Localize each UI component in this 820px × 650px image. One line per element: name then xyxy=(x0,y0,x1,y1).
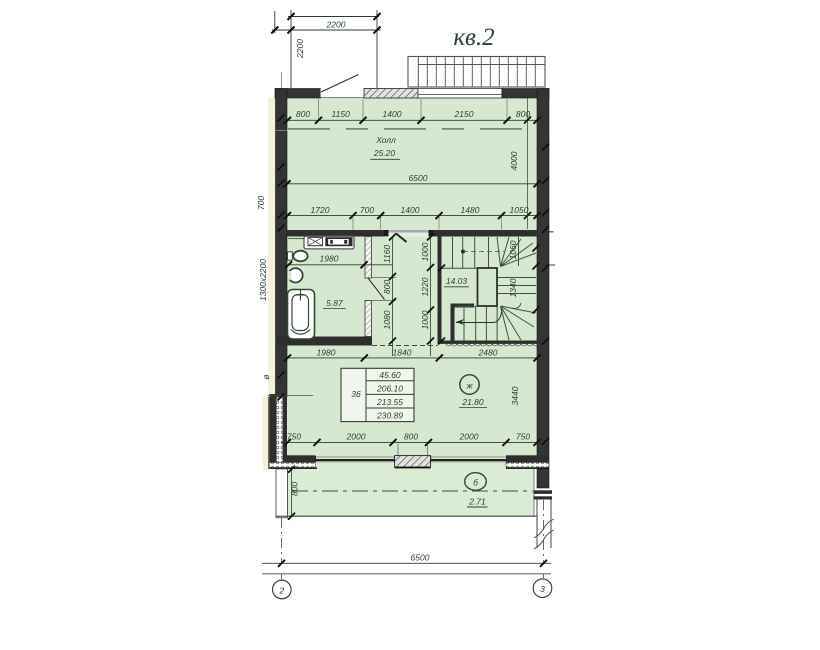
svg-text:700: 700 xyxy=(360,205,374,215)
svg-text:750: 750 xyxy=(516,431,530,441)
svg-text:4000: 4000 xyxy=(509,151,519,170)
svg-text:5.87: 5.87 xyxy=(326,298,343,308)
svg-text:45.60: 45.60 xyxy=(379,370,401,380)
svg-text:1340: 1340 xyxy=(508,278,518,297)
svg-text:1220: 1220 xyxy=(420,277,430,296)
svg-text:213.55: 213.55 xyxy=(376,397,403,407)
svg-text:14.03: 14.03 xyxy=(446,276,468,286)
svg-text:800: 800 xyxy=(290,482,300,496)
svg-text:2.71: 2.71 xyxy=(468,497,486,507)
svg-text:1480: 1480 xyxy=(461,205,480,215)
svg-text:3: 3 xyxy=(540,584,545,594)
svg-text:1400: 1400 xyxy=(383,109,402,119)
svg-text:Холл: Холл xyxy=(375,135,396,145)
svg-text:ø: ø xyxy=(261,374,271,379)
svg-text:800: 800 xyxy=(296,109,310,119)
svg-text:25.20: 25.20 xyxy=(373,148,396,158)
svg-text:1980: 1980 xyxy=(320,254,339,264)
svg-text:1000: 1000 xyxy=(420,310,430,329)
svg-text:1150: 1150 xyxy=(332,109,351,119)
svg-text:3440: 3440 xyxy=(510,386,520,405)
svg-text:1050: 1050 xyxy=(510,205,529,215)
svg-text:1160: 1160 xyxy=(382,245,392,264)
svg-text:750: 750 xyxy=(287,431,301,441)
svg-text:21.80: 21.80 xyxy=(461,397,484,407)
svg-text:1720: 1720 xyxy=(311,205,330,215)
svg-text:2150: 2150 xyxy=(454,109,474,119)
svg-text:2000: 2000 xyxy=(459,431,479,441)
svg-text:2200: 2200 xyxy=(326,20,346,30)
svg-text:2200: 2200 xyxy=(295,39,305,59)
svg-text:700: 700 xyxy=(256,196,266,210)
svg-text:1400: 1400 xyxy=(401,205,420,215)
svg-text:800: 800 xyxy=(404,431,418,441)
svg-text:2480: 2480 xyxy=(478,347,498,357)
svg-text:36: 36 xyxy=(351,389,361,399)
svg-text:1840: 1840 xyxy=(393,347,412,357)
svg-text:800: 800 xyxy=(516,109,530,119)
svg-text:2: 2 xyxy=(278,586,284,596)
svg-text:1060: 1060 xyxy=(508,240,518,259)
svg-text:206.10: 206.10 xyxy=(376,383,403,393)
svg-text:1000: 1000 xyxy=(420,242,430,261)
svg-text:1980: 1980 xyxy=(317,347,336,357)
svg-text:1300х2200: 1300х2200 xyxy=(258,259,268,301)
svg-text:1080: 1080 xyxy=(382,310,392,329)
svg-text:ж: ж xyxy=(466,381,474,391)
svg-text:2000: 2000 xyxy=(346,431,366,441)
svg-text:кв.2: кв.2 xyxy=(453,24,494,51)
svg-text:6500: 6500 xyxy=(409,173,428,183)
svg-text:230.89: 230.89 xyxy=(376,411,403,421)
svg-text:800: 800 xyxy=(382,280,392,294)
svg-text:6500: 6500 xyxy=(411,553,430,563)
